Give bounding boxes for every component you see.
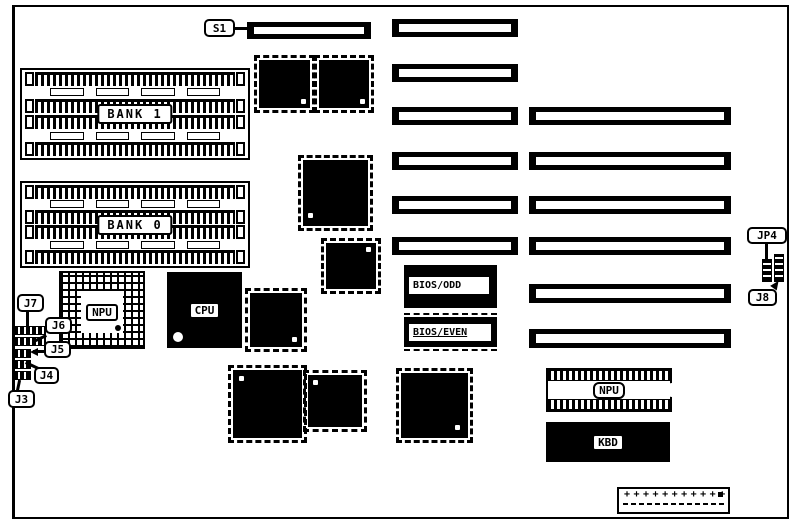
slot-opening bbox=[399, 157, 511, 165]
chip-outline-row bbox=[24, 88, 246, 96]
qfp-chip bbox=[233, 370, 302, 438]
chip-outline bbox=[141, 241, 175, 249]
socket-clip bbox=[25, 99, 34, 113]
chip-outline-row bbox=[24, 132, 246, 140]
isa-slot bbox=[529, 329, 731, 348]
label-s1: S1 bbox=[204, 19, 235, 37]
qfp-chip bbox=[319, 60, 369, 108]
j3-text: J3 bbox=[15, 393, 28, 406]
power-connector: +++++++++++ bbox=[617, 487, 730, 514]
cpu-chip: CPU bbox=[167, 272, 242, 348]
chip-outline bbox=[96, 200, 130, 208]
jp4-leader-line bbox=[765, 243, 768, 259]
pin1-dot bbox=[115, 325, 121, 331]
socket-clip bbox=[25, 72, 34, 86]
slot-opening bbox=[536, 157, 724, 165]
socket-clip bbox=[25, 250, 34, 264]
chip-outline bbox=[50, 241, 84, 249]
chip-outline bbox=[141, 132, 175, 140]
jp4-text: JP4 bbox=[757, 229, 777, 242]
dip-pin-row bbox=[548, 370, 670, 381]
pin1-dot bbox=[301, 99, 306, 104]
j4-text: J4 bbox=[40, 369, 53, 382]
dip-pin-row bbox=[548, 399, 670, 410]
simm-pins bbox=[35, 250, 235, 264]
socket-clip bbox=[236, 210, 245, 224]
slot-opening bbox=[254, 27, 364, 34]
motherboard-diagram: S1 BANK 1 BANK 0 bbox=[0, 0, 796, 527]
qfp-chip bbox=[401, 373, 468, 438]
j6-text: J6 bbox=[52, 319, 65, 332]
chip-outline bbox=[141, 88, 175, 96]
simm-socket-row bbox=[24, 250, 246, 264]
chip-outline bbox=[141, 200, 175, 208]
chip-outline bbox=[96, 132, 130, 140]
pin1-dot bbox=[455, 425, 460, 430]
socket-dashed-edge bbox=[404, 313, 497, 315]
pin1-dot bbox=[360, 99, 365, 104]
isa-slot bbox=[529, 107, 731, 125]
simm-pins bbox=[35, 142, 235, 156]
isa-slot bbox=[392, 19, 518, 37]
bank-1-label: BANK 1 bbox=[97, 104, 172, 124]
j7-text: J7 bbox=[24, 297, 37, 310]
isa-slot bbox=[392, 196, 518, 214]
chip-outline bbox=[50, 200, 84, 208]
slot-opening bbox=[399, 69, 511, 77]
isa-slot bbox=[529, 237, 731, 255]
cpu-label: CPU bbox=[189, 302, 221, 319]
simm-pins bbox=[35, 185, 235, 199]
chip-outline-row bbox=[24, 241, 246, 249]
socket-clip bbox=[236, 142, 245, 156]
socket-clip bbox=[25, 142, 34, 156]
connector-pins: +++++++++++ bbox=[624, 490, 729, 500]
socket-clip bbox=[25, 185, 34, 199]
label-j8: J8 bbox=[748, 289, 777, 306]
chip-outline bbox=[187, 88, 221, 96]
pin1-dot bbox=[292, 337, 297, 342]
socket-clip bbox=[25, 210, 34, 224]
simm-socket-row bbox=[24, 185, 246, 199]
bios-odd-label-text: BIOS/ODD bbox=[413, 280, 461, 291]
slot-opening bbox=[536, 201, 724, 209]
slot-opening bbox=[536, 334, 724, 343]
isa-slot bbox=[392, 64, 518, 82]
slot-opening bbox=[536, 242, 724, 250]
j8-text: J8 bbox=[756, 291, 769, 304]
isa-slot bbox=[529, 152, 731, 170]
socket-clip bbox=[236, 225, 245, 239]
bios-odd-chip: BIOS/ODD bbox=[404, 265, 497, 308]
label-j4: J4 bbox=[34, 367, 59, 384]
pin1-dot bbox=[308, 213, 313, 218]
isa-slot bbox=[392, 107, 518, 125]
bios-odd-label-band: BIOS/ODD bbox=[409, 277, 489, 294]
j5-arrowhead bbox=[30, 348, 38, 356]
npu-socket-center: NPU bbox=[81, 291, 123, 333]
bank-1-label-text: BANK 1 bbox=[107, 107, 162, 121]
bios-even-label-text: BIOS/EVEN bbox=[413, 327, 467, 338]
isa-slot bbox=[392, 152, 518, 170]
dip-socket-center: NPU bbox=[548, 381, 670, 399]
chip-outline bbox=[96, 241, 130, 249]
slot-opening bbox=[399, 242, 511, 250]
chip-outline bbox=[50, 88, 84, 96]
qfp-chip bbox=[303, 160, 368, 226]
bank-0-label: BANK 0 bbox=[97, 215, 172, 235]
label-j3: J3 bbox=[8, 390, 35, 408]
bios-even-chip: BIOS/EVEN bbox=[404, 317, 497, 347]
npu-socket-label: NPU bbox=[86, 304, 118, 321]
slot-opening bbox=[536, 112, 724, 120]
jumper-block-jp4 bbox=[762, 259, 772, 282]
memory-bank-0: BANK 0 bbox=[20, 181, 250, 268]
j5-text: J5 bbox=[51, 343, 64, 356]
isa-slot bbox=[529, 196, 731, 214]
s1-slot bbox=[247, 22, 371, 39]
pin1-dot bbox=[173, 332, 183, 342]
qfp-chip bbox=[259, 60, 310, 108]
socket-clip bbox=[236, 72, 245, 86]
s1-leader-line bbox=[234, 27, 248, 30]
qfp-chip bbox=[308, 375, 362, 427]
pin1-marker bbox=[718, 492, 723, 497]
slot-opening bbox=[536, 289, 724, 298]
jumper-block-j3 bbox=[13, 371, 31, 380]
pin1-dot bbox=[366, 247, 371, 252]
socket-clip bbox=[236, 185, 245, 199]
label-j7: J7 bbox=[17, 294, 44, 312]
slot-opening bbox=[399, 112, 511, 120]
socket-dashed-edge bbox=[404, 349, 497, 351]
kbd-label: KBD bbox=[592, 434, 624, 451]
pin1-dot bbox=[239, 376, 244, 381]
isa-slot bbox=[529, 284, 731, 303]
bios-even-label-band: BIOS/EVEN bbox=[409, 324, 491, 341]
jumper-block-j7 bbox=[13, 326, 46, 335]
npu-dip-socket: NPU bbox=[546, 368, 672, 412]
qfp-chip bbox=[250, 293, 302, 347]
j7-leader-line bbox=[26, 311, 29, 326]
connector-dash-line bbox=[623, 503, 724, 505]
jumper-block-j5 bbox=[13, 349, 31, 358]
simm-socket-row bbox=[24, 142, 246, 156]
simm-socket-row bbox=[24, 72, 246, 86]
kbd-chip: KBD bbox=[546, 422, 670, 462]
socket-clip bbox=[236, 250, 245, 264]
chip-outline bbox=[187, 241, 221, 249]
label-j5: J5 bbox=[44, 341, 71, 358]
chip-outline bbox=[187, 200, 221, 208]
s1-label-text: S1 bbox=[213, 22, 226, 35]
chip-outline bbox=[187, 132, 221, 140]
socket-clip bbox=[236, 99, 245, 113]
label-j6: J6 bbox=[45, 317, 72, 334]
bios-even-socket: BIOS/EVEN bbox=[404, 312, 497, 352]
isa-slot bbox=[392, 237, 518, 255]
chip-outline bbox=[96, 88, 130, 96]
bank-0-label-text: BANK 0 bbox=[107, 218, 162, 232]
npu-pga-socket: NPU bbox=[59, 271, 145, 349]
socket-clip bbox=[236, 115, 245, 129]
dip-notch bbox=[666, 383, 678, 397]
memory-bank-1: BANK 1 bbox=[20, 68, 250, 160]
slot-opening bbox=[399, 24, 511, 32]
socket-clip bbox=[25, 225, 34, 239]
chip-outline-row bbox=[24, 200, 246, 208]
qfp-chip bbox=[326, 243, 376, 289]
pin1-dot bbox=[313, 380, 318, 385]
slot-opening bbox=[399, 201, 511, 209]
npu-dip-label: NPU bbox=[593, 382, 625, 399]
chip-outline bbox=[50, 132, 84, 140]
label-jp4: JP4 bbox=[747, 227, 787, 244]
simm-pins bbox=[35, 72, 235, 86]
socket-clip bbox=[25, 115, 34, 129]
